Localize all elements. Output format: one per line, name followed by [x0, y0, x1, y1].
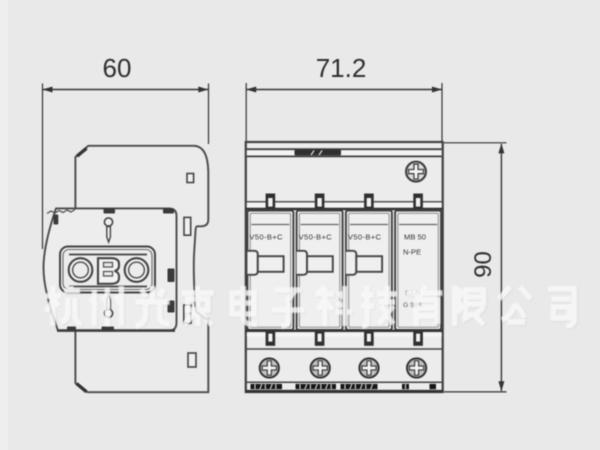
- svg-text:V50-B+C: V50-B+C: [299, 233, 333, 242]
- svg-text:V50-B+C: V50-B+C: [249, 233, 283, 242]
- svg-text:90: 90: [470, 251, 497, 278]
- svg-text:60: 60: [103, 53, 132, 83]
- svg-text:71.2: 71.2: [316, 53, 367, 83]
- svg-text:V50-B+C: V50-B+C: [348, 233, 382, 242]
- svg-text:MB 50: MB 50: [404, 233, 426, 242]
- svg-text:N-PE: N-PE: [403, 248, 421, 257]
